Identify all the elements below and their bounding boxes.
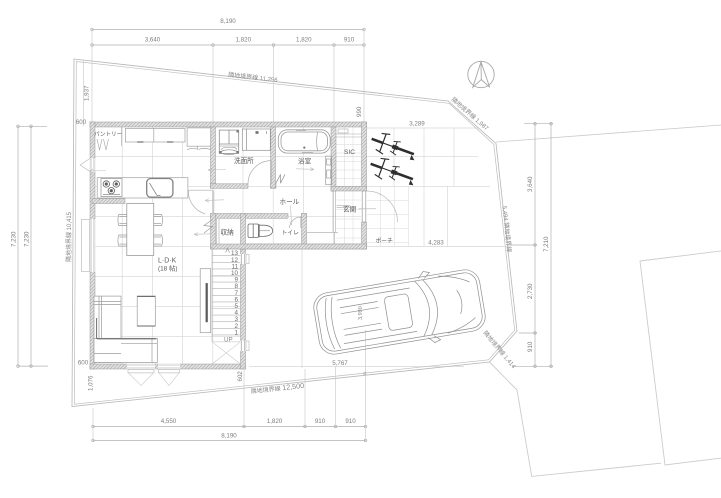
svg-text:5,767: 5,767 xyxy=(332,360,348,367)
svg-text:7,230: 7,230 xyxy=(24,231,31,247)
svg-text:洗面所: 洗面所 xyxy=(234,156,254,165)
svg-text:1: 1 xyxy=(234,329,238,336)
svg-text:7,210: 7,210 xyxy=(543,236,550,252)
svg-text:1,937: 1,937 xyxy=(84,85,91,101)
svg-text:ポーチ: ポーチ xyxy=(376,236,394,244)
svg-text:隣地境界線 10,415: 隣地境界線 10,415 xyxy=(65,211,73,262)
svg-text:1,820: 1,820 xyxy=(296,37,312,44)
svg-text:2,730: 2,730 xyxy=(527,283,534,299)
svg-text:トイレ: トイレ xyxy=(282,230,300,236)
svg-text:1,820: 1,820 xyxy=(267,418,283,425)
svg-text:600: 600 xyxy=(78,360,89,367)
svg-text:(18 帖): (18 帖) xyxy=(158,264,178,273)
svg-text:L·D·K: L·D·K xyxy=(158,258,177,265)
svg-text:7,230: 7,230 xyxy=(11,231,18,247)
svg-text:4,283: 4,283 xyxy=(428,240,444,247)
svg-text:8,190: 8,190 xyxy=(220,18,236,25)
svg-text:3,640: 3,640 xyxy=(145,37,161,44)
svg-text:4,550: 4,550 xyxy=(161,418,177,425)
svg-text:910: 910 xyxy=(344,37,355,44)
svg-text:910: 910 xyxy=(315,418,326,425)
svg-text:3,990: 3,990 xyxy=(358,306,364,320)
svg-text:1,076: 1,076 xyxy=(88,375,95,391)
svg-text:収納: 収納 xyxy=(221,228,235,237)
svg-text:1,820: 1,820 xyxy=(236,37,252,44)
svg-text:UP: UP xyxy=(224,337,233,344)
svg-text:910: 910 xyxy=(345,418,356,425)
svg-text:SIC: SIC xyxy=(344,149,355,156)
svg-text:ホール: ホール xyxy=(280,198,300,206)
svg-text:910: 910 xyxy=(527,341,534,352)
svg-text:パントリー: パントリー xyxy=(94,131,123,138)
svg-text:990: 990 xyxy=(356,106,363,117)
svg-text:玄関: 玄関 xyxy=(343,205,357,214)
svg-text:3,640: 3,640 xyxy=(527,176,534,192)
svg-text:8,190: 8,190 xyxy=(221,433,237,440)
svg-text:600: 600 xyxy=(76,119,87,126)
svg-text:3,289: 3,289 xyxy=(409,121,425,128)
svg-text:浴室: 浴室 xyxy=(298,157,312,166)
svg-text:602: 602 xyxy=(237,371,244,382)
